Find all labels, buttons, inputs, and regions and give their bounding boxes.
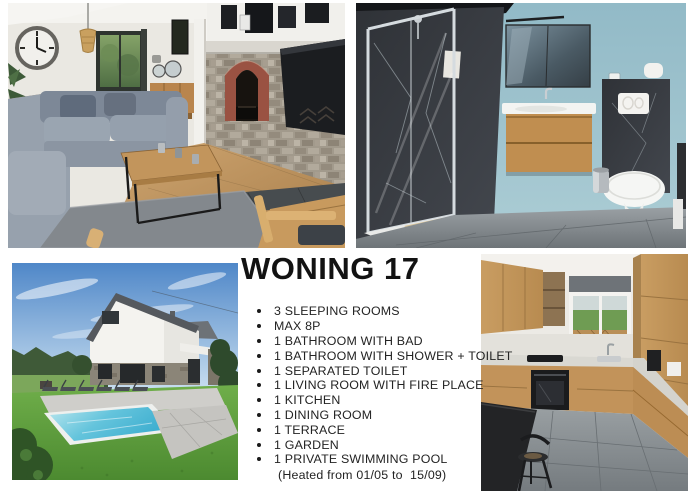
window [98,364,112,379]
feature-item: 1 SEPARATED TOILET [257,363,513,378]
bullet-icon [257,354,261,358]
sofa-pillow [60,95,96,120]
living-room-illustration [8,3,345,248]
flyer-page: WONING 17 3 SLEEPING ROOMS MAX 8P 1 BATH… [0,0,700,500]
bullet-icon [257,428,261,432]
feature-item: 1 DINING ROOM [257,408,513,423]
page-title: WONING 17 [241,253,419,284]
round-mirror [165,61,181,77]
toilet-roll [644,63,663,78]
gable-window [102,311,119,324]
shower-enclosure [356,7,504,246]
art-frame [221,5,237,29]
bullet-icon [257,324,261,328]
pool-illustration [12,263,238,480]
fireplace-arch [225,61,269,121]
art-frame [305,3,329,23]
window [152,366,165,382]
roller-blind [569,276,631,292]
stove-hood [280,39,345,135]
bullet-icon [257,383,261,387]
pedal-bin [593,167,609,193]
feature-item: 1 BATHROOM WITH BAD [257,334,513,349]
photo-bathroom [356,3,686,248]
heated-note: (Heated from 01/05 to 15/09) [278,468,446,482]
chimney-breast [207,3,345,41]
front-door [188,359,200,383]
round-mirror [153,65,165,77]
table-lamp [152,55,161,63]
bullet-icon [257,339,261,343]
living-window [94,29,147,95]
oven [531,370,569,410]
feature-item: 3 SLEEPING ROOMS [257,304,513,319]
feature-item: MAX 8P [257,319,513,334]
sink [597,356,621,362]
feature-item: 1 BATHROOM WITH SHOWER + TOILET [257,348,513,363]
feature-item: 1 GARDEN [257,437,513,452]
bullet-icon [257,369,261,373]
hall-window [172,20,188,54]
open-shelf [543,272,565,326]
small-appliance [667,362,681,376]
bullet-icon [257,457,261,461]
coffee-machine [647,350,661,371]
feature-item: 1 KITCHEN [257,393,513,408]
sofa-pillow [104,93,136,116]
photo-frame [240,15,250,30]
bullet-icon [257,309,261,313]
bullet-icon [257,398,261,402]
bullet-icon [257,443,261,447]
bullet-icon [257,413,261,417]
toilet-bowl [603,171,665,207]
feature-item: 1 TERRACE [257,422,513,437]
bathroom-illustration [356,3,686,248]
art-frame [278,6,296,28]
patio-door [120,364,145,383]
feature-list: 3 SLEEPING ROOMS MAX 8P 1 BATHROOM WITH … [257,304,513,467]
cooktop [527,355,563,362]
wall-clock [17,28,57,68]
curtain [141,29,147,91]
photo-pool-garden [12,263,238,480]
mirror-cabinet [506,17,590,87]
feature-item: 1 PRIVATE SWIMMING POOL [257,452,513,467]
feature-item: 1 LIVING ROOM WITH FIRE PLACE [257,378,513,393]
photo-living-room [8,3,345,248]
